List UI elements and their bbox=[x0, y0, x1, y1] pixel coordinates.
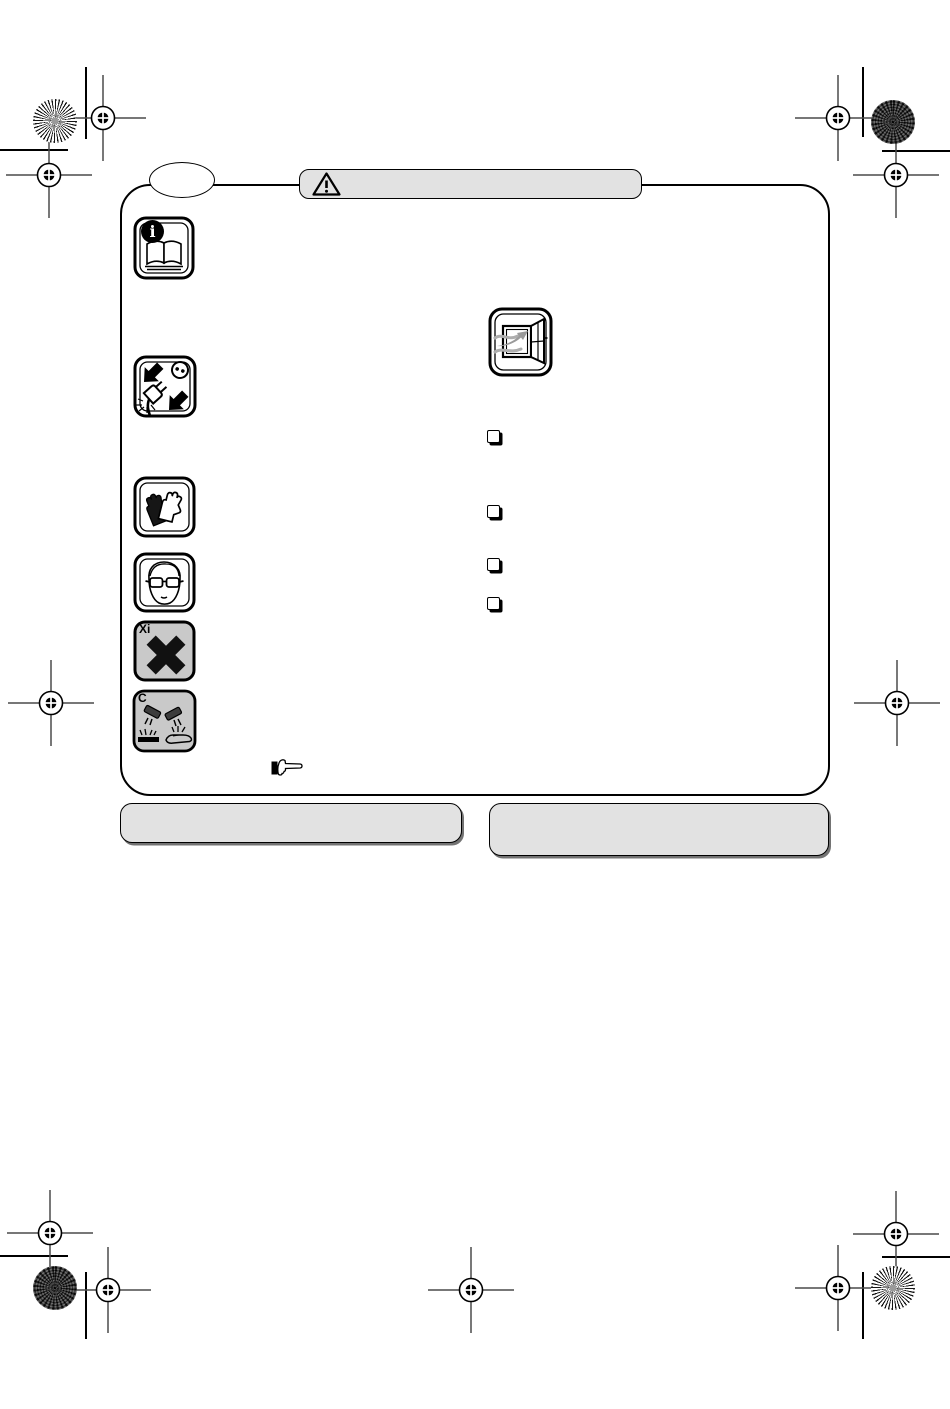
sunburst-circle-art bbox=[33, 99, 77, 143]
unplug-before-service-icon bbox=[133, 355, 197, 418]
irritant-hazard-code: Xi bbox=[139, 622, 150, 636]
checklist-bullet bbox=[487, 597, 500, 610]
checklist-bullet bbox=[487, 430, 500, 443]
irritant-hazard-icon: Xi bbox=[133, 620, 196, 682]
sunburst-circle-art bbox=[871, 1266, 915, 1310]
checklist-bullet bbox=[487, 505, 500, 518]
registration-mark-icon bbox=[793, 1243, 883, 1333]
registration-mark-icon bbox=[4, 130, 94, 220]
halftone-circle-art bbox=[871, 100, 915, 144]
content-frame bbox=[120, 184, 830, 796]
footer-band-right bbox=[489, 803, 829, 856]
pointing-hand-icon bbox=[271, 756, 303, 779]
manual-safety-page: i Xi C bbox=[0, 0, 950, 1409]
corrosive-hazard-code: C bbox=[138, 691, 147, 705]
warning-triangle-icon bbox=[311, 171, 342, 197]
registration-mark-icon bbox=[6, 658, 96, 748]
footer-band-left bbox=[120, 803, 462, 843]
open-window-airflow-icon bbox=[488, 307, 553, 377]
registration-mark-icon bbox=[426, 1245, 516, 1335]
safety-goggles-icon bbox=[133, 552, 196, 613]
warning-title-band bbox=[299, 169, 642, 199]
read-manual-icon: i bbox=[133, 216, 195, 280]
protective-gloves-icon bbox=[133, 476, 196, 538]
info-badge: i bbox=[141, 220, 164, 243]
section-number-oval bbox=[149, 162, 215, 198]
corrosive-hazard-icon: C bbox=[132, 689, 197, 753]
halftone-circle-art bbox=[33, 1266, 77, 1310]
checklist-bullet bbox=[487, 558, 500, 571]
registration-mark-icon bbox=[852, 658, 942, 748]
